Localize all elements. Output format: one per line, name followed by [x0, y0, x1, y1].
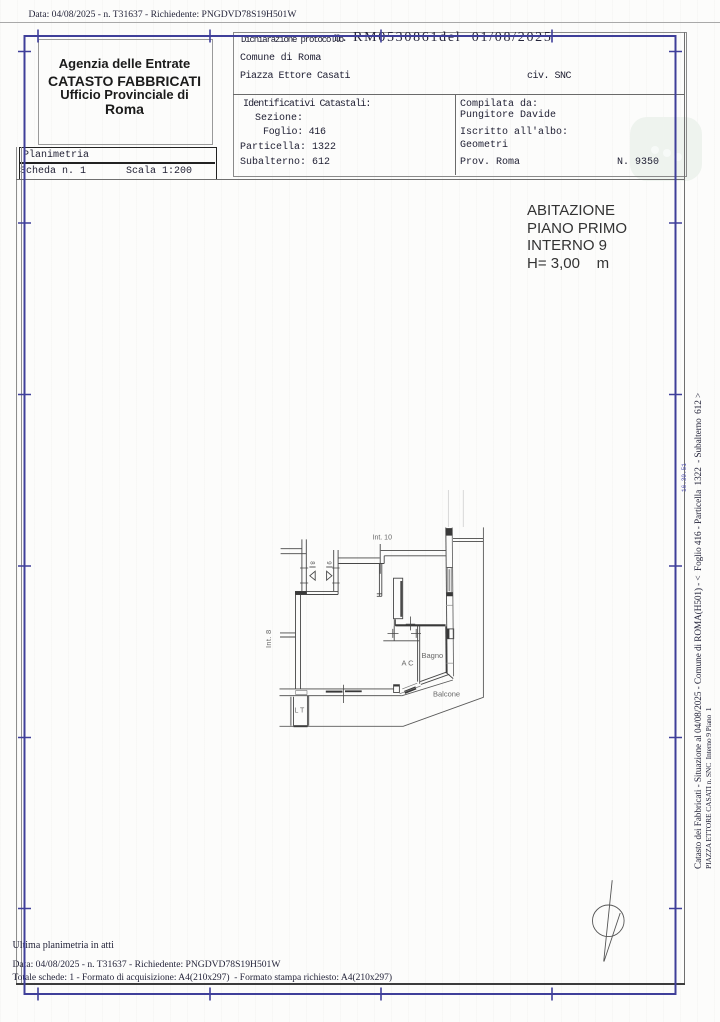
svg-text:Balcone: Balcone [433, 689, 460, 698]
svg-text:A C: A C [402, 659, 415, 668]
svg-text:8: 8 [308, 561, 314, 565]
svg-text:L T: L T [295, 708, 305, 715]
svg-text:9: 9 [325, 561, 331, 565]
svg-text:Int. 10: Int. 10 [373, 534, 393, 541]
svg-text:Int. 8: Int. 8 [264, 630, 273, 648]
svg-text:Bagno: Bagno [422, 651, 444, 660]
